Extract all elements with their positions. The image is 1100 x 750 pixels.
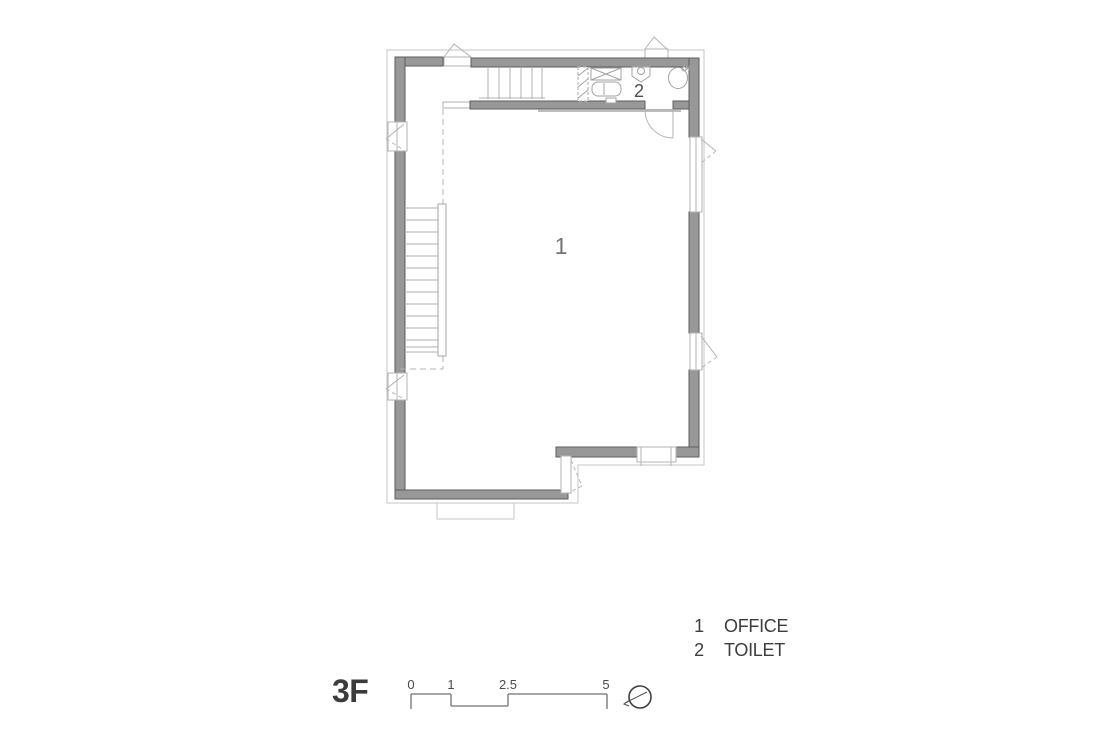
legend-room-name: TOILET (724, 640, 785, 660)
legend: 1 OFFICE 2 TOILET (694, 616, 788, 660)
stair-upper-flight (479, 67, 545, 99)
wc-basin (669, 66, 691, 89)
floor-plan-drawing: 1 2 1 OFFICE 2 TOILET 3F 0 1 2.5 5 (0, 0, 1100, 750)
window-left-upper (386, 122, 407, 151)
north-arrow-icon (624, 686, 651, 708)
right-wall-middle (689, 212, 699, 333)
scale-tick-label: 2.5 (499, 677, 517, 692)
interior-wall-stub (673, 101, 689, 109)
bottom-right-return-wall (676, 447, 699, 457)
top-wall-right (471, 58, 699, 67)
window-left-lower (386, 373, 407, 400)
lower-roof-step (437, 503, 514, 519)
scale-tick-label: 0 (407, 677, 414, 692)
roof-vent-right (645, 37, 668, 58)
wc-urinal (632, 67, 650, 82)
left-wall-middle (395, 151, 405, 373)
legend-number: 1 (694, 616, 704, 636)
legend-room-name: OFFICE (724, 616, 788, 636)
interior-wall (443, 101, 689, 112)
right-wall-upper (689, 58, 699, 137)
window-right-upper (690, 137, 716, 212)
interior-wall-main (470, 101, 645, 109)
door-notch (561, 456, 582, 493)
stair-lower-flight (406, 204, 446, 356)
room-label-toilet: 2 (634, 81, 644, 101)
left-wall-lower (395, 400, 405, 499)
floor-title: 3F (332, 673, 368, 709)
toilet-door-swing (645, 110, 673, 138)
toilet-partition (578, 67, 588, 101)
floor-plan-page: 1 2 1 OFFICE 2 TOILET 3F 0 1 2.5 5 (0, 0, 1100, 750)
right-wall-lower (689, 370, 699, 457)
scale-tick-label: 1 (447, 677, 454, 692)
wc-toilet (591, 68, 621, 103)
stair-railing (438, 204, 446, 356)
bottom-wall (395, 490, 568, 499)
legend-number: 2 (694, 640, 704, 660)
scale-bar: 0 1 2.5 5 (407, 677, 609, 709)
left-wall-upper (395, 57, 405, 122)
roof-eave-outline (387, 50, 704, 503)
room-label-office: 1 (555, 233, 568, 259)
roof-vent-left (444, 44, 471, 66)
window-notch (637, 447, 676, 466)
scale-tick-label: 5 (602, 677, 609, 692)
